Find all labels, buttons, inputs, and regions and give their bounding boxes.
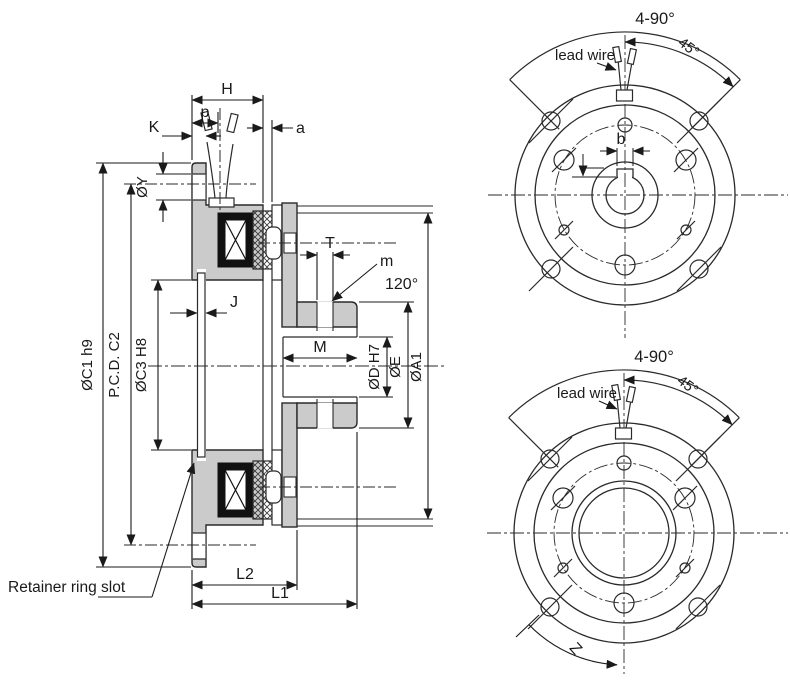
dim-K: K [149, 119, 160, 136]
fv1-centerlines [488, 35, 788, 338]
dim-p: p [201, 104, 210, 121]
fv1-b-dimension [572, 148, 650, 177]
dim-phiY: ØY [134, 176, 151, 198]
coil-top [218, 211, 273, 269]
fv2-lead-wire-leader [599, 401, 617, 409]
fv1-lead-wire-leader [597, 63, 616, 70]
fv1-dim-45: 45° [675, 35, 702, 61]
dim-phiC1: ØC1 h9 [79, 339, 96, 391]
fv2-z-dimension [516, 615, 617, 665]
front-view-top: b 4-90° 45° lead wire [488, 10, 788, 338]
dim-M: M [313, 339, 326, 356]
armature-rotor [258, 203, 433, 527]
fv2-label-lead-wire: lead wire [557, 385, 617, 402]
dim-L1: L1 [271, 585, 289, 602]
dim-120: 120° [385, 276, 418, 293]
section-view: H p K a ØY J T m 120° M ØD H7 ØE ØA1 ØC1… [8, 81, 445, 609]
dim-m: m [380, 253, 393, 270]
clutch-drawing: H p K a ØY J T m 120° M ØD H7 ØE ØA1 ØC1… [0, 0, 790, 680]
dim-H: H [221, 81, 233, 98]
drawing-sheet: H p K a ØY J T m 120° M ØD H7 ØE ØA1 ØC1… [0, 0, 790, 680]
dim-phiD: ØD H7 [366, 344, 383, 390]
dim-L2: L2 [236, 566, 254, 583]
dim-phiC3: ØC3 H8 [133, 338, 150, 392]
fv1-dim-4-90: 4-90° [635, 10, 675, 28]
flange-hole-bottom [193, 533, 206, 559]
dim-phiE: ØE [387, 356, 404, 378]
fv2-centerlines [487, 373, 788, 674]
note-retainer-ring-slot: Retainer ring slot [8, 579, 126, 596]
friction-disc [197, 269, 206, 461]
dim-phiA1: ØA1 [408, 352, 425, 382]
fv1-label-lead-wire: lead wire [555, 47, 615, 64]
front-view-bottom: 4-90° 45° lead wire Z [487, 348, 788, 674]
flange-hole-top [193, 174, 206, 200]
dim-a: a [296, 120, 305, 137]
fv1-dim-b: b [617, 131, 626, 148]
dim-PCD: P.C.D. C2 [106, 332, 123, 398]
fv2-dim-45: 45° [674, 373, 701, 399]
dim-T: T [325, 235, 335, 252]
coil-bottom [218, 461, 273, 519]
dim-J: J [230, 294, 238, 311]
fv2-dim-4-90: 4-90° [634, 348, 674, 366]
